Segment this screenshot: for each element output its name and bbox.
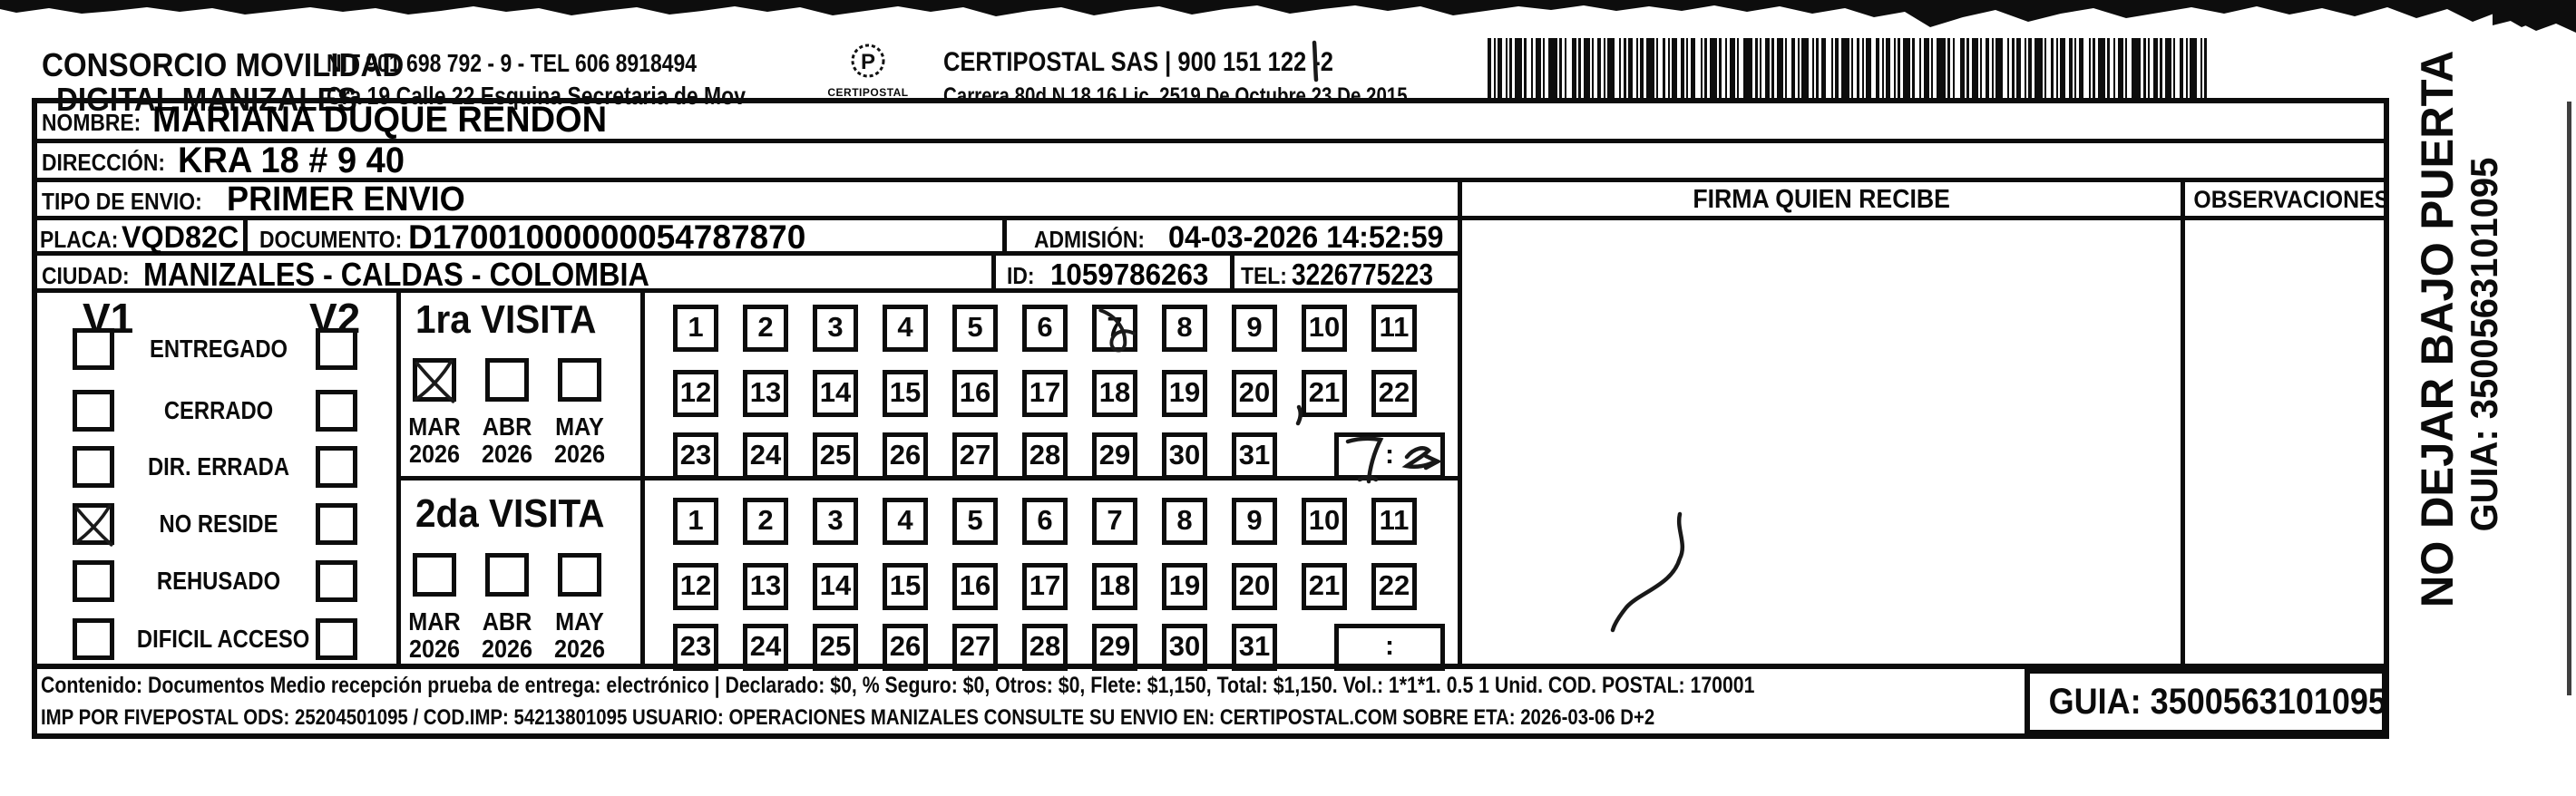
time-colon: : [1385,440,1394,470]
visit2-day-25: 25 [813,624,858,671]
admision-value: 04-03-2026 14:52:59 [1168,220,1443,256]
visit1-day-29: 29 [1092,432,1137,480]
visit2-day-23: 23 [673,624,718,671]
visit1-month-abr: ABR2026 [485,358,545,471]
month-year: 2026 [407,440,461,469]
visit2-day-11: 11 [1371,498,1417,545]
visit1-day-3: 3 [813,305,858,352]
visit2-time-box: : [1334,624,1445,671]
visit1-day-12: 12 [673,370,718,417]
visit1-time-box: : [1334,432,1445,480]
visit1-month-may: MAY2026 [558,358,618,471]
footer-content-line: Contenido: Documentos Medio recepción pr… [41,673,1754,699]
time-colon: : [1385,631,1394,661]
tipo-envio-value: PRIMER ENVIO [227,180,465,219]
month-checkbox [485,553,529,597]
v2-cerrado-checkbox [316,390,357,432]
visit1-day-row-1: 1234567891011 [673,305,1471,352]
status-option-label: DIR. ERRADA [137,446,300,488]
month-year: 2026 [480,440,533,469]
nombre-label: NOMBRE: [42,109,141,137]
observaciones-header-text: OBSERVACIONES [2193,186,2389,214]
tel-label: TEL: [1241,262,1287,290]
v2-dificil-acceso-checkbox [316,618,357,660]
visit1-day-19: 19 [1162,370,1207,417]
v1-cerrado-checkbox [73,390,114,432]
visit2-day-7: 7 [1092,498,1137,545]
carrier-name-nit: CERTIPOSTAL SAS | 900 151 122 -2 [943,47,1333,78]
certipostal-logo: P CERTIPOSTAL [827,42,909,104]
month-label: MAR [407,413,461,442]
visit1-title: 1ra VISITA [415,297,596,343]
pen-x-mark [70,500,117,548]
v1-rehusado-checkbox [73,560,114,602]
visit1-day-20: 20 [1232,370,1277,417]
visit1-day-14: 14 [813,370,858,417]
month-label: ABR [480,607,533,636]
visit-block-2: 2da VISITA MAR2026ABR2026MAY2026 1234567… [399,479,1461,666]
visit2-day-1: 1 [673,498,718,545]
status-row-dir-errada: DIR. ERRADA [32,446,399,488]
status-option-label: ENTREGADO [137,328,300,370]
status-panel: V1 V2 ENTREGADOCERRADODIR. ERRADANO RESI… [32,292,399,666]
direccion-label: DIRECCIÓN: [42,149,165,177]
visit2-day-14: 14 [813,563,858,610]
month-year: 2026 [552,635,606,664]
visit2-day-30: 30 [1162,624,1207,671]
status-row-no-reside: NO RESIDE [32,503,399,545]
visit2-day-10: 10 [1302,498,1347,545]
visit1-day-26: 26 [883,432,928,480]
visit2-day-16: 16 [952,563,998,610]
v2-no-reside-checkbox [316,503,357,545]
visit1-day-row-3: 232425262728293031: [673,432,1471,480]
visit2-day-27: 27 [952,624,998,671]
status-row-rehusado: REHUSADO [32,560,399,602]
status-option-label: REHUSADO [137,560,300,602]
firma-quien-recibe-header: FIRMA QUIEN RECIBE [1462,185,2181,215]
month-label: MAY [552,607,606,636]
guia-number-box: GUIA: 3500563101095 [2025,668,2387,735]
visit1-day-25: 25 [813,432,858,480]
visit2-day-24: 24 [743,624,788,671]
visit2-day-5: 5 [952,498,998,545]
visit2-day-26: 26 [883,624,928,671]
admision-label: ADMISIÓN: [1034,226,1145,254]
id-value: 1059786263 [1050,257,1208,292]
month-checkbox [558,553,601,597]
visit2-day-31: 31 [1232,624,1277,671]
visit1-day-22: 22 [1371,370,1417,417]
carrier-address-license: Carrera 80d N 18 16 Lic. 2519 De Octubre… [943,83,1408,110]
v2-dir-errada-checkbox [316,446,357,488]
visit1-day-31: 31 [1232,432,1277,480]
month-label: MAY [552,413,606,442]
barcode [1488,38,2213,103]
month-year: 2026 [407,635,461,664]
v1-dificil-acceso-checkbox [73,618,114,660]
v1-no-reside-checkbox [73,503,114,545]
v2-rehusado-checkbox [316,560,357,602]
month-label: ABR [480,413,533,442]
side-note-guia: GUIA: 3500563101095 [2462,90,2507,599]
visit1-day-2: 2 [743,305,788,352]
status-row-entregado: ENTREGADO [32,328,399,370]
visit1-day-23: 23 [673,432,718,480]
visit1-day-13: 13 [743,370,788,417]
visit1-day-17: 17 [1022,370,1068,417]
visit1-day-30: 30 [1162,432,1207,480]
observaciones-header: OBSERVACIONES [2185,186,2384,214]
tipo-envio-label: TIPO DE ENVIO: [42,188,202,216]
visit1-day-24: 24 [743,432,788,480]
certipostal-logo-icon: P [827,42,909,82]
visit1-day-7: 7 [1092,305,1137,352]
scan-edge-artifact [2567,102,2571,695]
status-option-label: DIFICIL ACCESO [137,618,300,660]
placa-label: PLACA: [40,226,118,254]
id-label: ID: [1007,262,1035,290]
guia-number-text: GUIA: 3500563101095 [2049,674,2386,730]
visit-block-1: 1ra VISITA MAR2026ABR2026MAY2026 1234567… [399,292,1461,476]
pen-scribble-mark [1089,302,1140,354]
visit2-day-row-2: 1213141516171819202122 [673,563,1471,610]
v1-entregado-checkbox [73,328,114,370]
month-label: MAR [407,607,461,636]
ciudad-label: CIUDAD: [42,262,130,290]
month-checkbox [485,358,529,402]
visit1-day-27: 27 [952,432,998,480]
tel-value: 3226775223 [1292,257,1433,292]
visit1-day-10: 10 [1302,305,1347,352]
visit1-day-5: 5 [952,305,998,352]
documento-label: DOCUMENTO: [259,226,402,254]
pen-x-mark [410,355,459,404]
visit2-day-row-3: 232425262728293031: [673,624,1471,671]
visit1-day-11: 11 [1371,305,1417,352]
visit2-day-29: 29 [1092,624,1137,671]
svg-text:P: P [861,50,875,74]
visit1-day-row-2: 1213141516171819202122 [673,370,1471,417]
visit2-day-3: 3 [813,498,858,545]
visit1-day-18: 18 [1092,370,1137,417]
visit2-day-13: 13 [743,563,788,610]
visit2-day-17: 17 [1022,563,1068,610]
visit2-day-18: 18 [1092,563,1137,610]
documento-value: D17001000000054787870 [408,218,805,257]
placa-value: VQD82C [122,220,239,256]
visit1-day-9: 9 [1232,305,1277,352]
visit2-month-abr: ABR2026 [485,553,545,666]
month-year: 2026 [552,440,606,469]
visit1-day-28: 28 [1022,432,1068,480]
side-note-warning: NO DEJAR BAJO PUERTA [2413,82,2462,607]
visit2-day-2: 2 [743,498,788,545]
v1-dir-errada-checkbox [73,446,114,488]
visit2-title: 2da VISITA [415,491,604,537]
visit2-day-4: 4 [883,498,928,545]
firma-header-text: FIRMA QUIEN RECIBE [1693,185,1950,215]
visit2-month-mar: MAR2026 [413,553,473,666]
visit2-day-20: 20 [1232,563,1277,610]
visit2-day-12: 12 [673,563,718,610]
signature-squiggle [1613,514,1683,630]
month-checkbox [413,358,456,402]
torn-paper-edge [0,0,2576,36]
visit2-day-9: 9 [1232,498,1277,545]
visit1-day-1: 1 [673,305,718,352]
visit2-day-21: 21 [1302,563,1347,610]
month-checkbox [558,358,601,402]
ciudad-value: MANIZALES - CALDAS - COLOMBIA [143,256,649,294]
visit1-day-8: 8 [1162,305,1207,352]
visit2-day-19: 19 [1162,563,1207,610]
side-note: NO DEJAR BAJO PUERTA GUIA: 3500563101095 [2413,76,2511,613]
visit2-day-22: 22 [1371,563,1417,610]
month-checkbox [413,553,456,597]
status-option-label: CERRADO [137,390,300,432]
status-row-dificil-acceso: DIFICIL ACCESO [32,618,399,660]
v2-entregado-checkbox [316,328,357,370]
visit2-day-8: 8 [1162,498,1207,545]
footer-imp-line: IMP POR FIVEPOSTAL ODS: 25204501095 / CO… [41,705,1654,731]
sender-nit-tel: NIT 901 698 792 - 9 - TEL 606 8918494 [327,49,697,78]
visit2-day-6: 6 [1022,498,1068,545]
visit1-month-mar: MAR2026 [413,358,473,471]
visit2-day-28: 28 [1022,624,1068,671]
visit2-day-row-1: 1234567891011 [673,498,1471,545]
direccion-value: KRA 18 # 9 40 [178,141,405,181]
month-year: 2026 [480,635,533,664]
visit2-month-may: MAY2026 [558,553,618,666]
status-option-label: NO RESIDE [137,503,300,545]
logo-text: CERTIPOSTAL [827,86,909,99]
nombre-value: MARIANA DUQUE RENDON [152,100,607,141]
visit2-day-15: 15 [883,563,928,610]
visit1-day-16: 16 [952,370,998,417]
status-row-cerrado: CERRADO [32,390,399,432]
visit1-day-6: 6 [1022,305,1068,352]
visit1-day-21: 21 [1302,370,1347,417]
delivery-slip-page: CONSORCIO MOVILIDAD DIGITAL MANIZALES NI… [0,0,2576,796]
visit1-day-4: 4 [883,305,928,352]
visit1-day-15: 15 [883,370,928,417]
